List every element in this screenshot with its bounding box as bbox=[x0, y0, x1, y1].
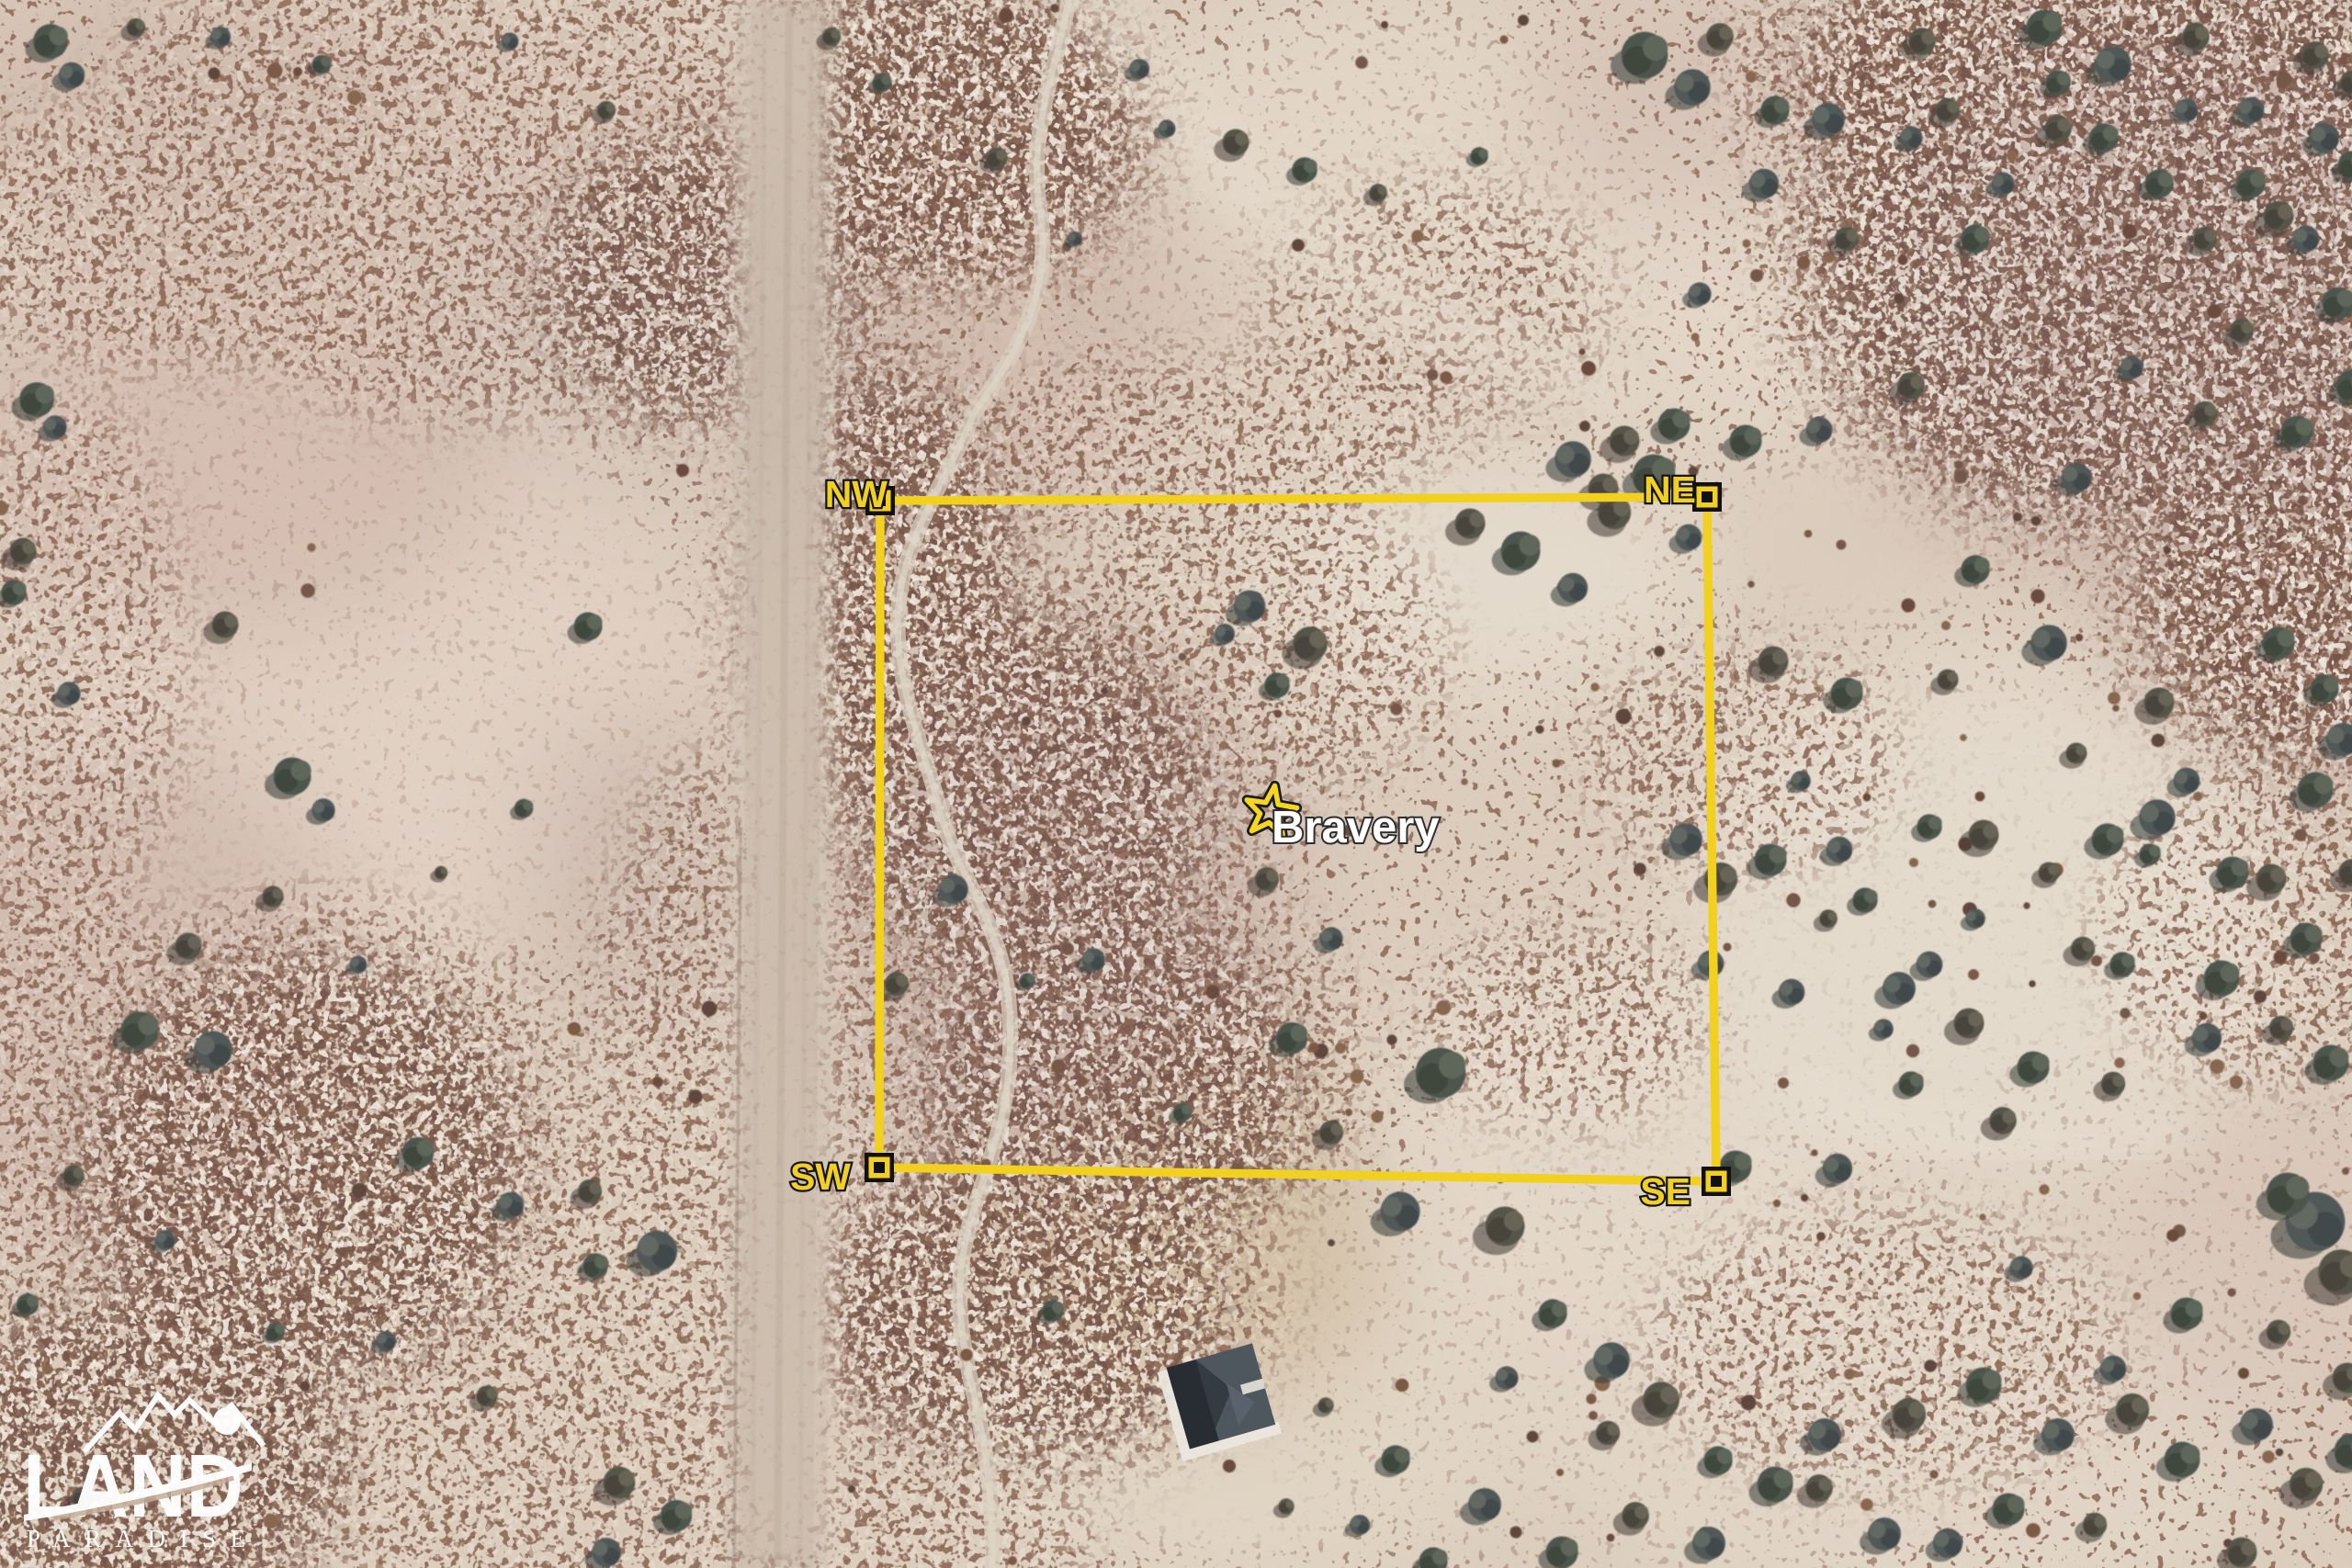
svg-text:Bravery: Bravery bbox=[1272, 803, 1440, 852]
svg-text:NE: NE bbox=[1644, 468, 1696, 511]
svg-text:NW: NW bbox=[825, 473, 888, 515]
svg-text:SE: SE bbox=[1640, 1170, 1690, 1213]
svg-text:SW: SW bbox=[790, 1156, 851, 1198]
